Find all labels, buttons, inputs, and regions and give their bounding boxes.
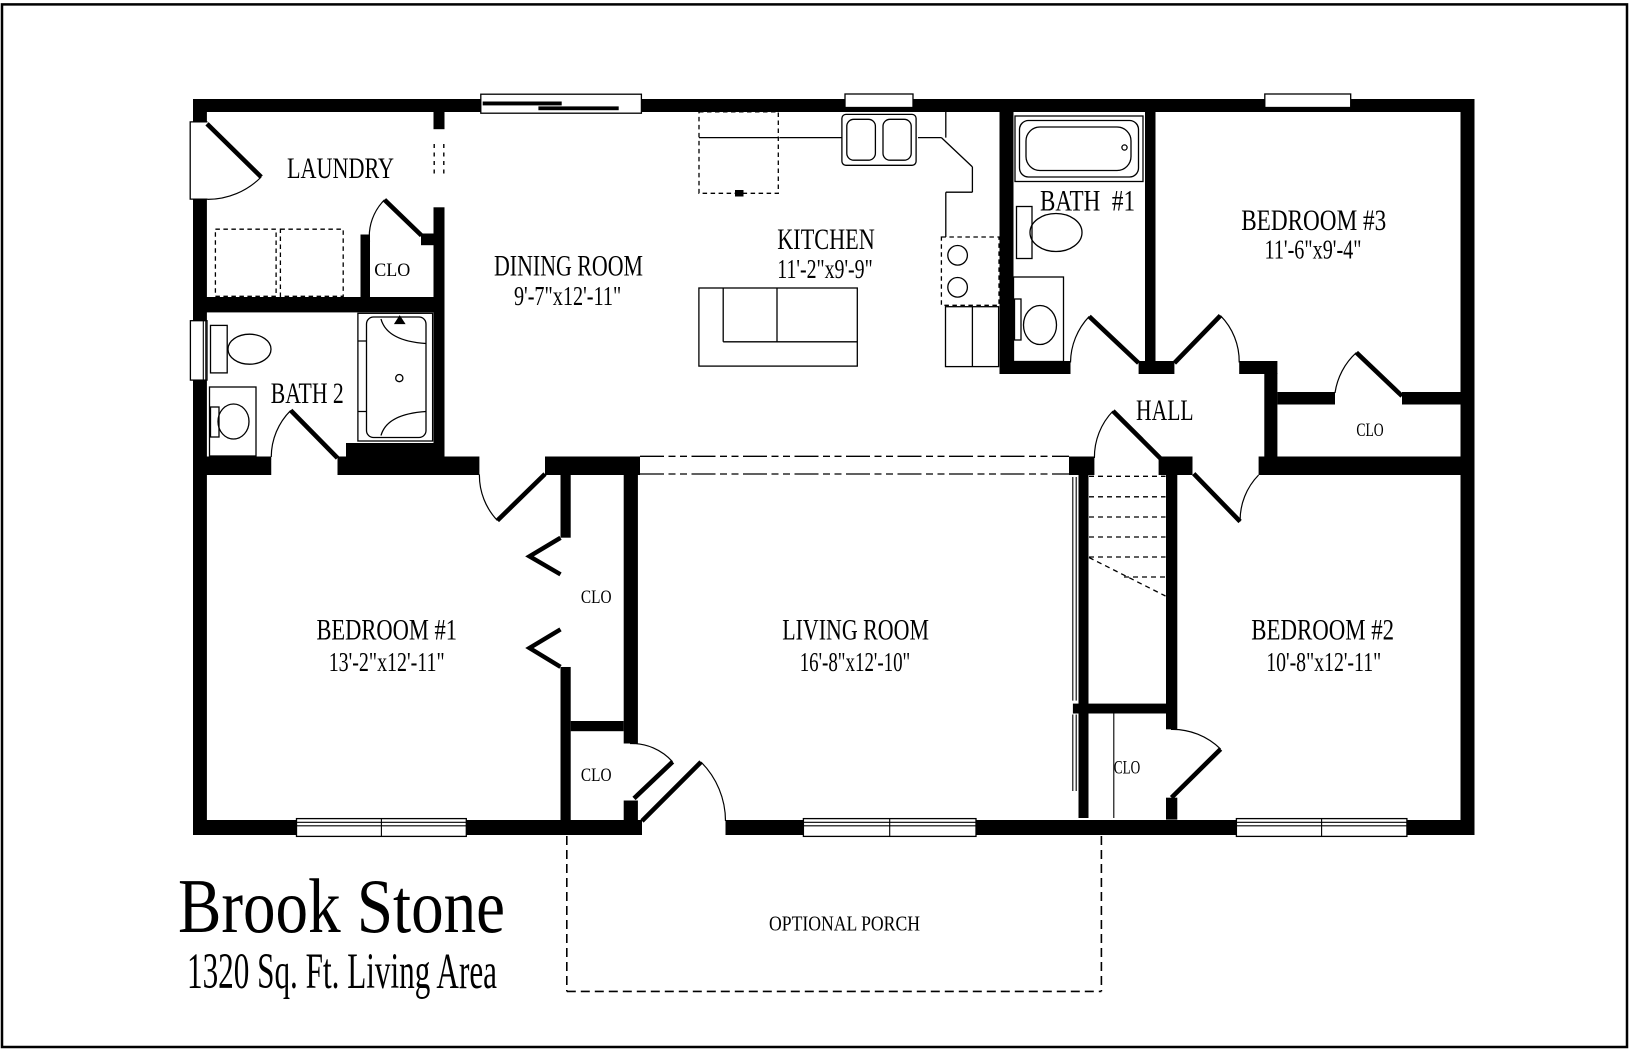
svg-text:OPTIONAL PORCH: OPTIONAL PORCH xyxy=(769,911,920,935)
svg-text:BEDROOM #3: BEDROOM #3 xyxy=(1241,204,1386,237)
svg-text:CLO: CLO xyxy=(581,587,612,608)
svg-text:BATH 2: BATH 2 xyxy=(271,377,344,410)
svg-text:BATH #1: BATH #1 xyxy=(1040,185,1135,218)
svg-text:11'-2"x9'-9": 11'-2"x9'-9" xyxy=(777,253,872,284)
svg-text:HALL: HALL xyxy=(1136,394,1194,427)
svg-text:Brook Stone: Brook Stone xyxy=(178,863,505,949)
svg-text:13'-2"x12'-11": 13'-2"x12'-11" xyxy=(329,646,445,677)
svg-text:BEDROOM #1: BEDROOM #1 xyxy=(316,614,457,647)
svg-text:LIVING ROOM: LIVING ROOM xyxy=(782,614,929,647)
svg-text:BEDROOM #2: BEDROOM #2 xyxy=(1251,614,1394,647)
svg-text:10'-8"x12'-11": 10'-8"x12'-11" xyxy=(1266,646,1381,677)
svg-text:9'-7"x12'-11": 9'-7"x12'-11" xyxy=(514,280,621,311)
svg-text:16'-8"x12'-10": 16'-8"x12'-10" xyxy=(800,646,911,677)
svg-text:CLO: CLO xyxy=(1114,757,1141,778)
svg-text:LAUNDRY: LAUNDRY xyxy=(287,152,394,185)
svg-text:1320 Sq. Ft. Living Area: 1320 Sq. Ft. Living Area xyxy=(187,944,497,1000)
svg-text:CLO: CLO xyxy=(581,765,612,786)
svg-text:DINING ROOM: DINING ROOM xyxy=(494,250,643,283)
svg-text:CLO: CLO xyxy=(1356,420,1383,441)
svg-text:KITCHEN: KITCHEN xyxy=(777,223,875,256)
svg-text:CLO: CLO xyxy=(374,260,410,281)
svg-text:11'-6"x9'-4": 11'-6"x9'-4" xyxy=(1265,234,1362,265)
